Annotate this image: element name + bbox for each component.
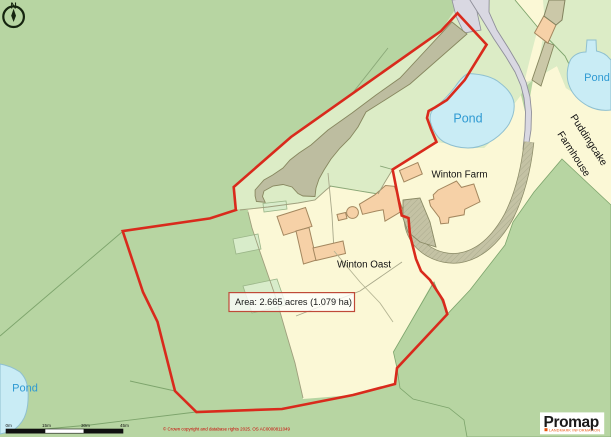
- svg-text:Pond: Pond: [453, 112, 482, 126]
- svg-text:Winton Oast: Winton Oast: [337, 260, 391, 271]
- svg-text:Winton Farm: Winton Farm: [431, 170, 487, 181]
- svg-text:Pond: Pond: [12, 383, 38, 395]
- svg-text:0m: 0m: [6, 423, 13, 428]
- svg-text:45m: 45m: [120, 423, 129, 428]
- svg-text:Pond: Pond: [584, 72, 610, 84]
- svg-text:© Crown copyright and database: © Crown copyright and database rights 20…: [163, 427, 290, 432]
- svg-text:LANDMARK INFORMATION: LANDMARK INFORMATION: [549, 428, 600, 432]
- svg-text:Area: 2.665 acres (1.079 ha): Area: 2.665 acres (1.079 ha): [235, 297, 352, 307]
- svg-text:15m: 15m: [42, 423, 51, 428]
- svg-text:30m: 30m: [81, 423, 90, 428]
